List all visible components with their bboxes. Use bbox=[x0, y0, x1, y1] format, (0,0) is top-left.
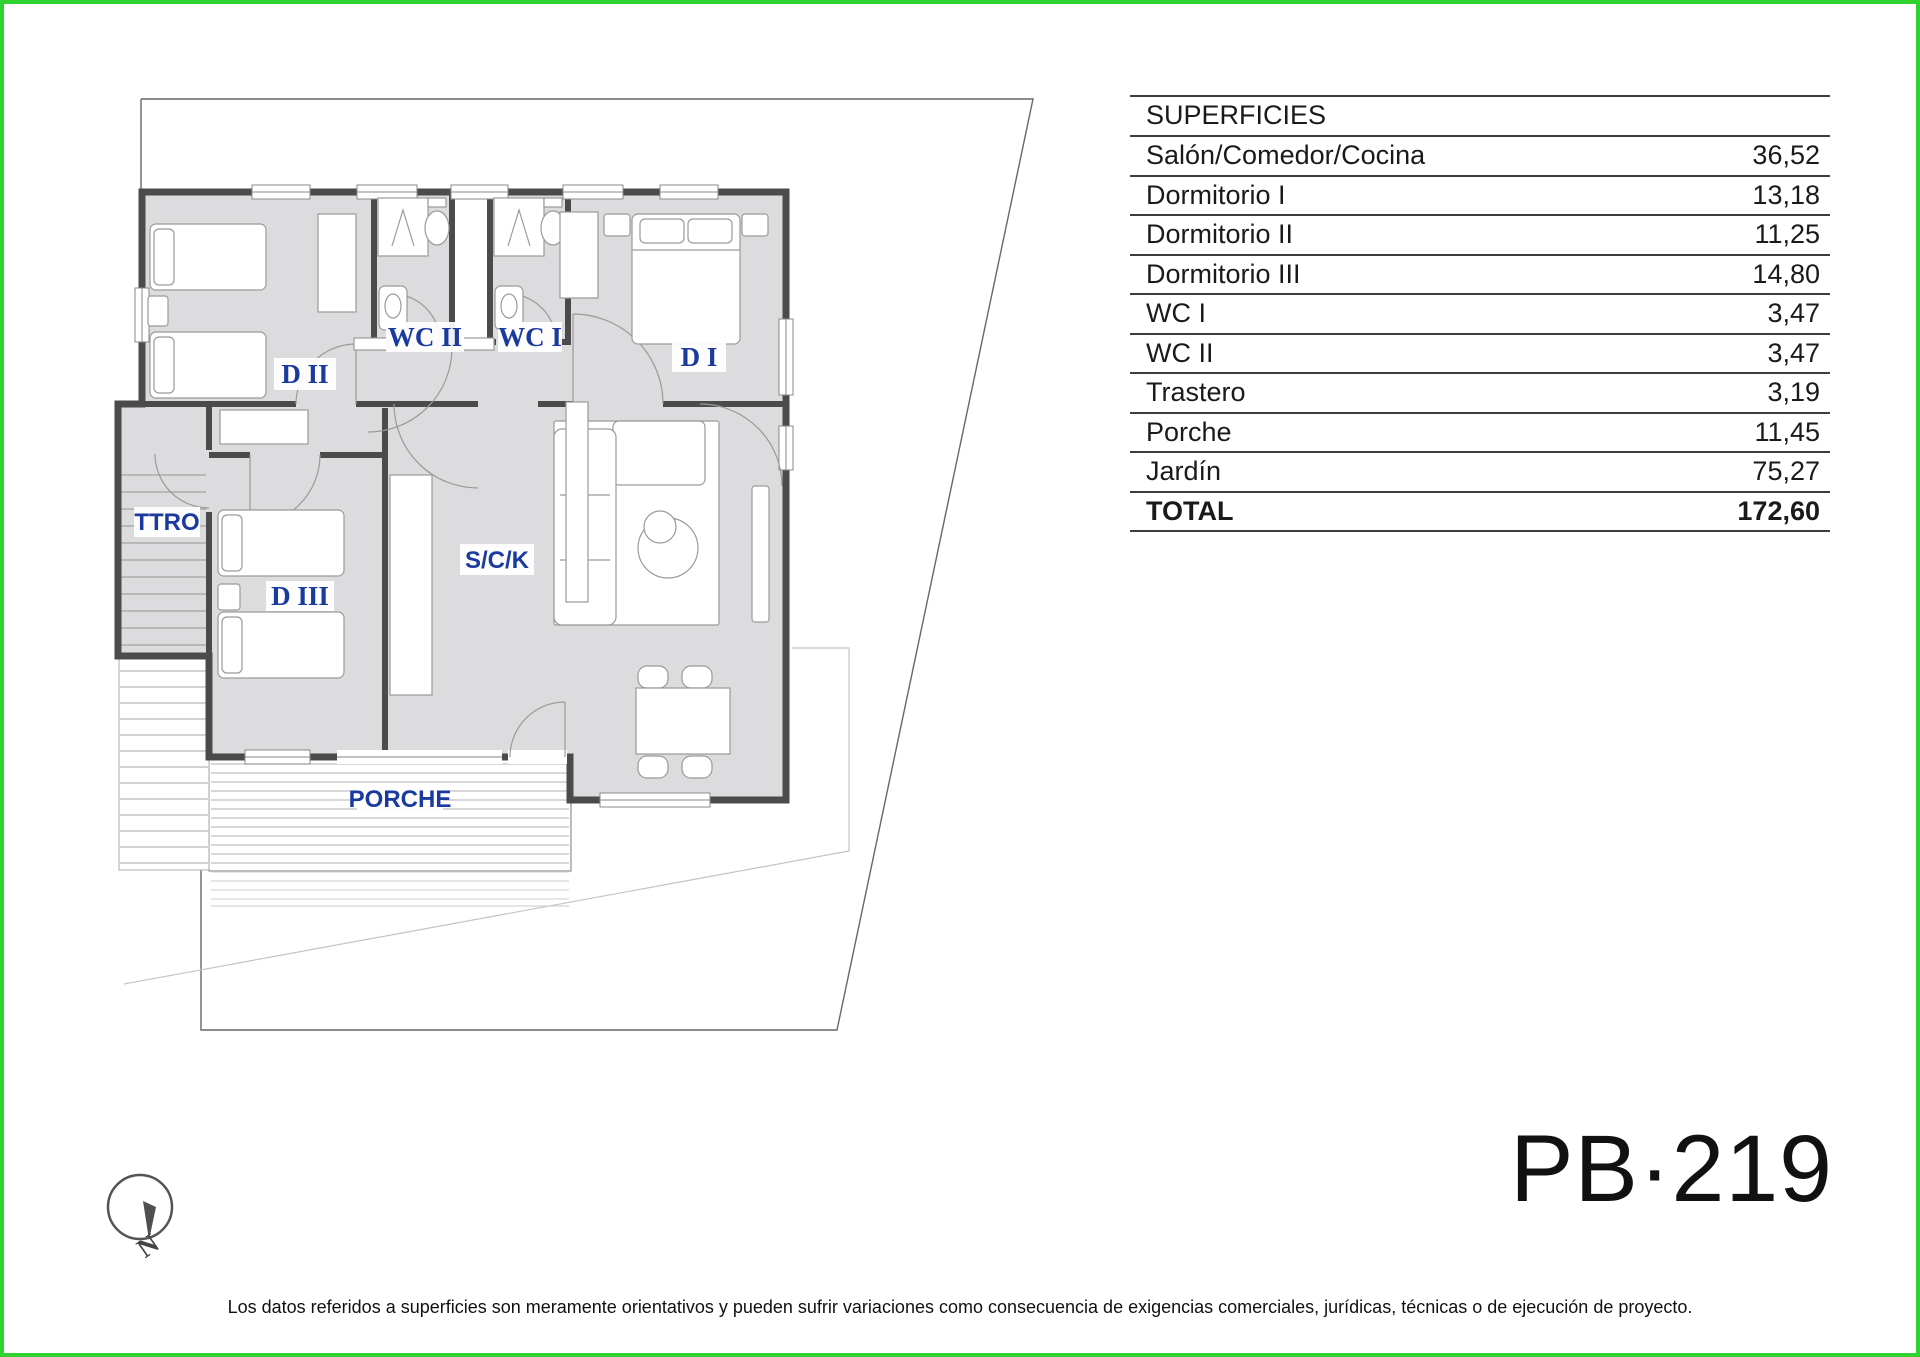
row-label: Dormitorio III bbox=[1130, 256, 1301, 294]
nightstand bbox=[218, 584, 240, 610]
shower bbox=[494, 198, 544, 256]
table-row: Trastero 3,19 bbox=[1130, 374, 1830, 414]
row-label: Jardín bbox=[1130, 453, 1221, 491]
surfaces-table: SUPERFICIES Salón/Comedor/Cocina 36,52 D… bbox=[1130, 95, 1830, 532]
table-row: Porche 11,45 bbox=[1130, 414, 1830, 454]
row-label: Porche bbox=[1130, 414, 1232, 452]
surfaces-title: SUPERFICIES bbox=[1130, 97, 1326, 135]
double-bed bbox=[632, 214, 740, 344]
trastero-stairs bbox=[121, 470, 206, 654]
chaise bbox=[613, 421, 705, 485]
row-value: 3,47 bbox=[1767, 295, 1830, 333]
bed bbox=[218, 612, 344, 678]
wardrobe bbox=[560, 212, 598, 298]
kitchen-island bbox=[566, 402, 588, 602]
row-value: 36,52 bbox=[1752, 137, 1830, 175]
row-label: Salón/Comedor/Cocina bbox=[1130, 137, 1425, 175]
table-row: Dormitorio II 11,25 bbox=[1130, 216, 1830, 256]
table-row: Salón/Comedor/Cocina 36,52 bbox=[1130, 137, 1830, 177]
room-label-porche: PORCHE bbox=[349, 786, 452, 813]
row-value: 3,19 bbox=[1767, 374, 1830, 412]
toilet bbox=[425, 198, 449, 245]
room-label-salon: S/C/K bbox=[465, 547, 530, 574]
wc-door-leaf bbox=[460, 338, 494, 350]
room-label-dormitorio-3: D III bbox=[271, 581, 329, 611]
row-value: 11,25 bbox=[1754, 216, 1830, 254]
row-value: 3,47 bbox=[1767, 335, 1830, 373]
table-row: Jardín 75,27 bbox=[1130, 453, 1830, 493]
row-value: 14,80 bbox=[1752, 256, 1830, 294]
room-label-dormitorio-1: D I bbox=[681, 342, 718, 372]
tv-unit bbox=[752, 486, 769, 622]
table-row: Dormitorio III 14,80 bbox=[1130, 256, 1830, 296]
wc-door-leaf bbox=[354, 338, 388, 350]
total-label: TOTAL bbox=[1130, 493, 1234, 531]
row-value: 11,45 bbox=[1754, 414, 1830, 452]
wardrobe bbox=[220, 410, 308, 444]
nightstand bbox=[742, 214, 768, 236]
row-label: Dormitorio I bbox=[1130, 177, 1286, 215]
kitchen-counter bbox=[390, 475, 432, 695]
table-row: Dormitorio I 13,18 bbox=[1130, 177, 1830, 217]
row-label: Dormitorio II bbox=[1130, 216, 1293, 254]
wc-shaft bbox=[455, 196, 487, 342]
wardrobe bbox=[318, 214, 356, 312]
table-row: WC II 3,47 bbox=[1130, 335, 1830, 375]
row-label: WC I bbox=[1130, 295, 1206, 333]
room-label-wc-2: WC II bbox=[388, 322, 462, 352]
bed bbox=[150, 332, 266, 398]
room-label-trastero: TTRO bbox=[134, 509, 199, 536]
shower bbox=[378, 198, 428, 256]
row-label: WC II bbox=[1130, 335, 1214, 373]
surfaces-table-header: SUPERFICIES bbox=[1130, 97, 1830, 137]
lamp bbox=[644, 511, 676, 543]
row-label: Trastero bbox=[1130, 374, 1246, 412]
plan-code: PB·219 bbox=[1510, 1122, 1833, 1217]
disclaimer-text: Los datos referidos a superficies son me… bbox=[0, 1297, 1920, 1318]
nightstand bbox=[148, 296, 168, 326]
room-label-dormitorio-2: D II bbox=[281, 359, 328, 389]
table-row-total: TOTAL 172,60 bbox=[1130, 493, 1830, 533]
bed bbox=[218, 510, 344, 576]
row-value: 75,27 bbox=[1752, 453, 1830, 491]
porch-deck bbox=[209, 757, 571, 906]
table-row: WC I 3,47 bbox=[1130, 295, 1830, 335]
wall-openings bbox=[337, 750, 567, 764]
bed bbox=[150, 224, 266, 290]
room-label-wc-1: WC I bbox=[498, 322, 562, 352]
nightstand bbox=[604, 214, 630, 236]
compass-icon: N bbox=[108, 1175, 172, 1264]
total-value: 172,60 bbox=[1737, 493, 1830, 531]
exterior-steps bbox=[119, 658, 209, 870]
row-value: 13,18 bbox=[1752, 177, 1830, 215]
